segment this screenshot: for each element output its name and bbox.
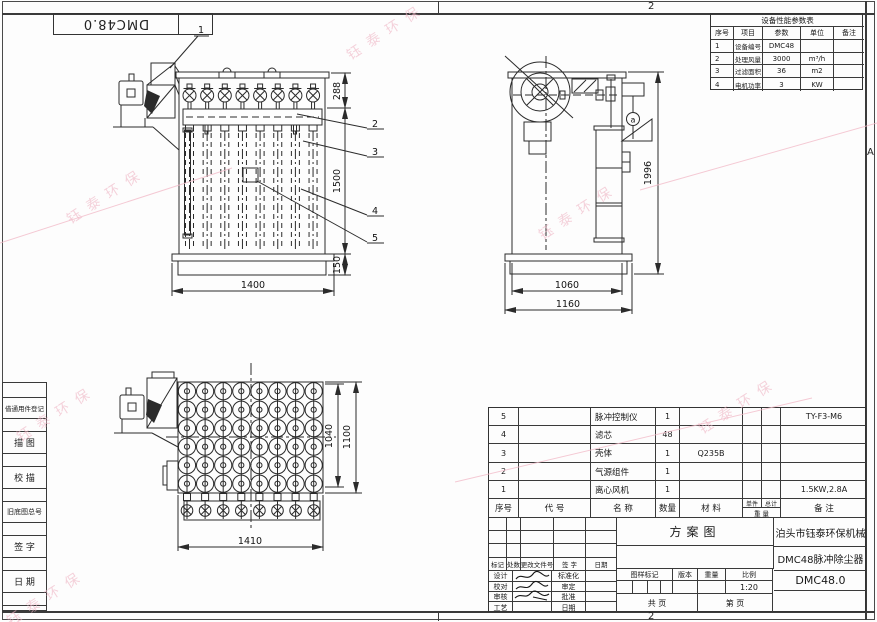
bom-qty: 1: [656, 408, 680, 426]
bom-code: [519, 463, 591, 481]
bom-qty: 1: [656, 481, 680, 499]
param-cell: 处理风量: [734, 53, 763, 65]
balloon-4: 4: [372, 206, 378, 217]
param-cell: DMC48: [763, 40, 801, 53]
dim-1040: 1040: [324, 424, 335, 448]
role-process: 工艺: [489, 602, 513, 613]
margin-label-tracing: 描 图: [3, 431, 46, 453]
rev-header-count: 处数: [507, 558, 521, 571]
mark-header-drawing-mark: 图样标记: [617, 569, 673, 581]
side-balloon-a: a: [627, 113, 640, 140]
param-header-item: 项目: [734, 27, 763, 40]
side-pulse-piping: [513, 75, 652, 141]
bom-unit-weight: [743, 481, 762, 499]
param-cell: KW: [801, 78, 834, 91]
bom-material: [680, 463, 743, 481]
role-design: 设计: [489, 571, 513, 582]
bom-material: Q235B: [680, 444, 743, 463]
product-name: DMC48脉冲除尘器: [774, 547, 867, 571]
param-header-no: 序号: [711, 27, 734, 40]
bom-name: 滤芯: [591, 426, 656, 444]
bom-remark: TY-F3-M6: [781, 408, 867, 426]
margin-table: 借通用件登记 描 图 校 描 旧底图总号 签 字 日 期: [2, 382, 47, 611]
role-approve2: 批准: [552, 592, 586, 602]
dim-1100: 1100: [342, 425, 353, 449]
bom-title-block: 5 脉冲控制仪 1 TY-F3-M6 4 滤芯 48 3 壳体 1 Q235B …: [488, 407, 866, 612]
rev-header-signature: 签 字: [554, 558, 586, 571]
zone-tick-bottom: [438, 612, 439, 621]
bom-qty: 1: [656, 463, 680, 481]
side-cabinet: [505, 56, 632, 274]
bom-no: 1: [489, 481, 519, 499]
role-check: 校对: [489, 582, 513, 592]
bom-qty: 48: [656, 426, 680, 444]
bom-no: 2: [489, 463, 519, 481]
balloon-5: 5: [372, 233, 378, 244]
bom-total-weight: [762, 408, 781, 426]
drawing-number: DMC48.0: [774, 571, 867, 591]
parameter-table-title: 设备性能参数表: [711, 14, 864, 27]
side-dimensions: 1996 1060 1160: [505, 72, 664, 314]
pages-total: 共 页: [617, 594, 698, 613]
mark-header-scale: 比例: [726, 569, 773, 581]
bom-header-code: 代 号: [519, 499, 591, 518]
rev-header-date: 日期: [586, 558, 617, 571]
dim-1160: 1160: [556, 299, 580, 310]
dim-1500: 1500: [332, 169, 343, 193]
zone-label-right: A: [867, 147, 874, 158]
param-cell: m2: [801, 65, 834, 78]
bom-unit-weight: [743, 463, 762, 481]
pages-no: 第 页: [698, 594, 773, 613]
param-header-value: 参数: [763, 27, 801, 40]
param-cell: 3000: [763, 53, 801, 65]
bom-header-no: 序号: [489, 499, 519, 518]
zone-label-top: 2: [648, 1, 654, 12]
scale-value: 1:20: [726, 581, 773, 594]
front-pulse-valves: [183, 84, 320, 109]
bom-material: [680, 408, 743, 426]
param-cell: 36: [763, 65, 801, 78]
bom-name: 脉冲控制仪: [591, 408, 656, 426]
bom-unit-weight: [743, 444, 762, 463]
role-date: 日期: [552, 602, 586, 613]
drawing-type: 方案图: [617, 518, 774, 546]
bom-remark: 1.5KW,2.8A: [781, 481, 867, 499]
role-standardization: 标准化: [552, 571, 586, 582]
bom-name: 气源组件: [591, 463, 656, 481]
side-view-drawing: a 1996 1060 1160: [478, 38, 700, 323]
bom-unit-weight: [743, 426, 762, 444]
bom-header-name: 名 称: [591, 499, 656, 518]
company-name: 泊头市钰泰环保机械: [774, 518, 867, 547]
bom-remark: [781, 444, 867, 463]
margin-label-common-parts: 借通用件登记: [3, 397, 46, 418]
param-cell: [834, 53, 864, 65]
param-cell: [801, 40, 834, 53]
bom-name: 离心风机: [591, 481, 656, 499]
front-balloons: 1 2 3 4 5: [170, 25, 384, 244]
bom-no: 4: [489, 426, 519, 444]
param-header-unit: 单位: [801, 27, 834, 40]
param-cell: 设备编号: [734, 40, 763, 53]
bom-code: [519, 408, 591, 426]
bom-name: 壳体: [591, 444, 656, 463]
role-approve1: 审定: [552, 582, 586, 592]
engineering-drawing-sheet: 2 2 A DMC48.0 借通用件登记 描 图 校 描 旧底图总号 签 字 日…: [0, 0, 877, 622]
param-cell: [834, 78, 864, 91]
bom-remark: [781, 463, 867, 481]
plan-pulse-valves: [181, 494, 319, 520]
bom-header-weight: 重 量: [743, 508, 781, 518]
zone-tick-top: [438, 1, 439, 13]
bom-code: [519, 444, 591, 463]
bom-unit-weight: [743, 408, 762, 426]
dim-1410: 1410: [238, 536, 262, 547]
front-fan-assembly: [113, 63, 179, 150]
param-cell: 4: [711, 78, 734, 91]
bom-total-weight: [762, 426, 781, 444]
balloon-1: 1: [198, 25, 204, 36]
param-cell: 电机功率: [734, 78, 763, 91]
param-cell: 2: [711, 53, 734, 65]
param-cell: 1: [711, 40, 734, 53]
bom-no: 5: [489, 408, 519, 426]
param-header-remark: 备注: [834, 27, 864, 40]
front-filter-cartridges: [186, 125, 318, 251]
bom-code: [519, 481, 591, 499]
dim-288: 288: [332, 82, 343, 100]
dim-1400: 1400: [241, 280, 265, 291]
bom-no: 3: [489, 444, 519, 463]
bom-header-qty: 数量: [656, 499, 680, 518]
balloon-2: 2: [372, 119, 378, 130]
bom-material: [680, 481, 743, 499]
handwritten-signatures: [513, 571, 552, 602]
parameter-table: 设备性能参数表 序号 项目 参数 单位 备注 1 设备编号 DMC48 2 处理…: [710, 13, 863, 90]
margin-label-signature: 签 字: [3, 535, 46, 557]
bom-remark: [781, 426, 867, 444]
dim-1060: 1060: [555, 280, 579, 291]
plan-view-drawing: 1040 1100 1410: [108, 353, 370, 563]
front-view-drawing: 288 1500 150 1400 1 2 3 4 5: [108, 18, 408, 320]
rev-header-doc-no: 更改文件号: [521, 558, 554, 571]
bom-total-weight: [762, 444, 781, 463]
param-cell: m³/h: [801, 53, 834, 65]
bom-header-remark: 备 注: [781, 499, 867, 518]
rev-header-mark: 标记: [489, 558, 507, 571]
dim-1996: 1996: [643, 161, 654, 185]
role-review: 审核: [489, 592, 513, 602]
side-access-door: [594, 126, 630, 242]
side-fan: [505, 56, 598, 154]
param-cell: 3: [711, 65, 734, 78]
bom-total-weight: [762, 481, 781, 499]
bom-code: [519, 426, 591, 444]
balloon-3: 3: [372, 147, 378, 158]
margin-label-check-tracing: 校 描: [3, 466, 46, 488]
bom-material: [680, 426, 743, 444]
mark-header-weight: 重量: [698, 569, 726, 581]
margin-label-date: 日 期: [3, 570, 46, 592]
param-cell: [834, 40, 864, 53]
plan-fan-assembly: [114, 372, 178, 447]
mark-header-version: 版本: [673, 569, 698, 581]
param-cell: 过滤面积: [734, 65, 763, 78]
param-cell: 3: [763, 78, 801, 91]
margin-label-old-drawing-no: 旧底图总号: [3, 501, 46, 522]
bom-total-weight: [762, 463, 781, 481]
bom-qty: 1: [656, 444, 680, 463]
balloon-a: a: [631, 116, 636, 125]
bom-header-material: 材 料: [680, 499, 743, 518]
param-cell: [834, 65, 864, 78]
